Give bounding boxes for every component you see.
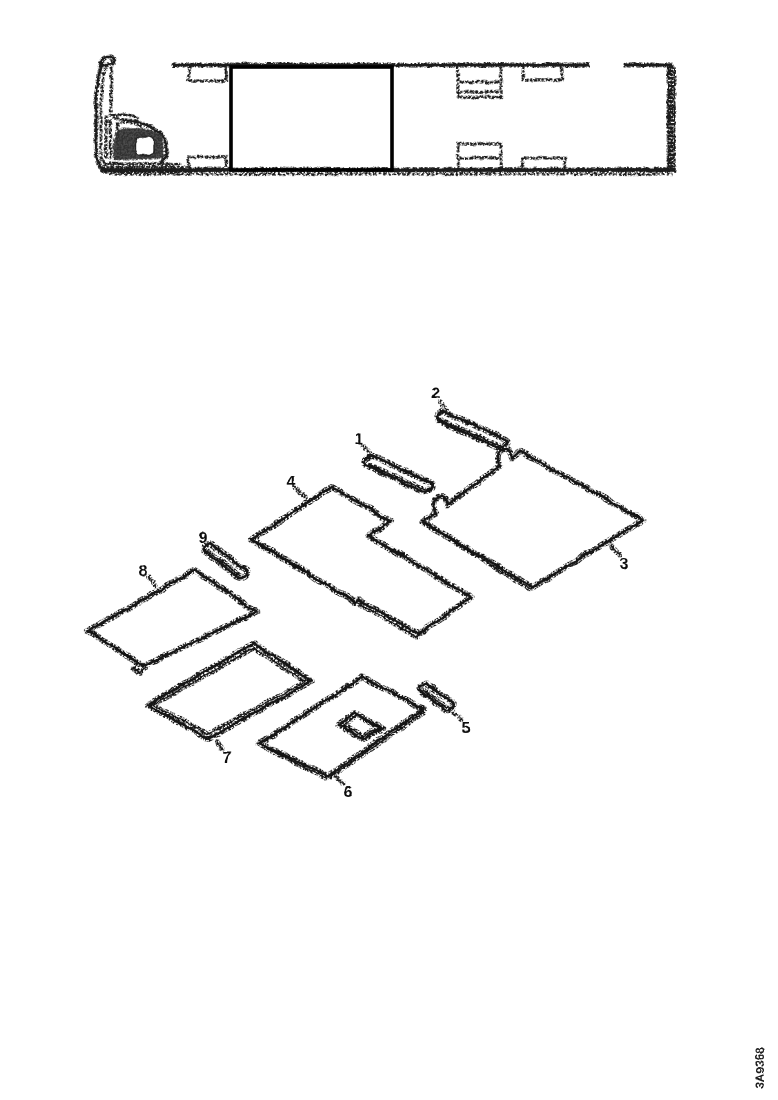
svg-text:4: 4: [287, 474, 296, 491]
svg-text:1: 1: [355, 431, 364, 448]
svg-text:6: 6: [344, 784, 353, 801]
svg-text:8: 8: [139, 563, 148, 580]
svg-text:3A9368: 3A9368: [753, 1047, 767, 1089]
svg-text:9: 9: [199, 530, 208, 547]
svg-text:2: 2: [432, 385, 441, 402]
svg-text:5: 5: [462, 720, 471, 737]
svg-text:3: 3: [620, 556, 629, 573]
svg-text:7: 7: [223, 750, 232, 767]
